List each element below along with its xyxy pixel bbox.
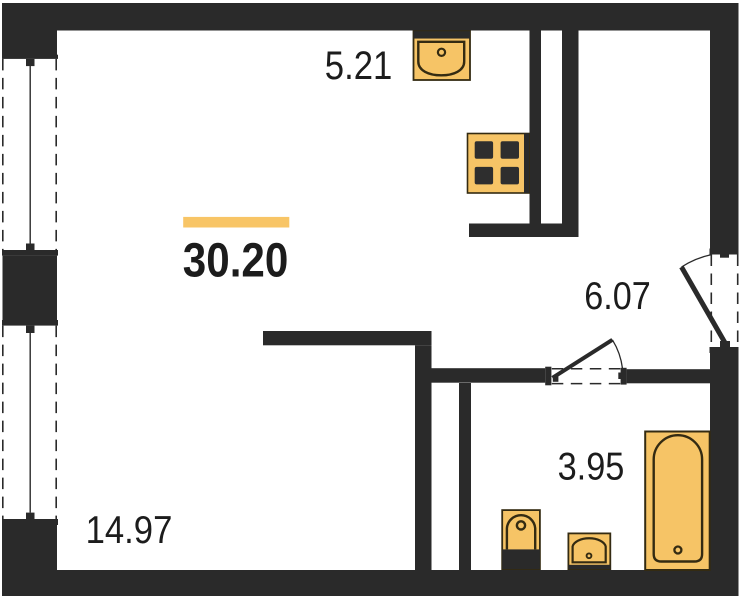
- svg-text:30.20: 30.20: [183, 235, 288, 288]
- svg-text:5.21: 5.21: [325, 44, 393, 88]
- svg-text:3.95: 3.95: [558, 446, 625, 489]
- svg-text:14.97: 14.97: [86, 509, 173, 552]
- svg-text:6.07: 6.07: [584, 275, 651, 318]
